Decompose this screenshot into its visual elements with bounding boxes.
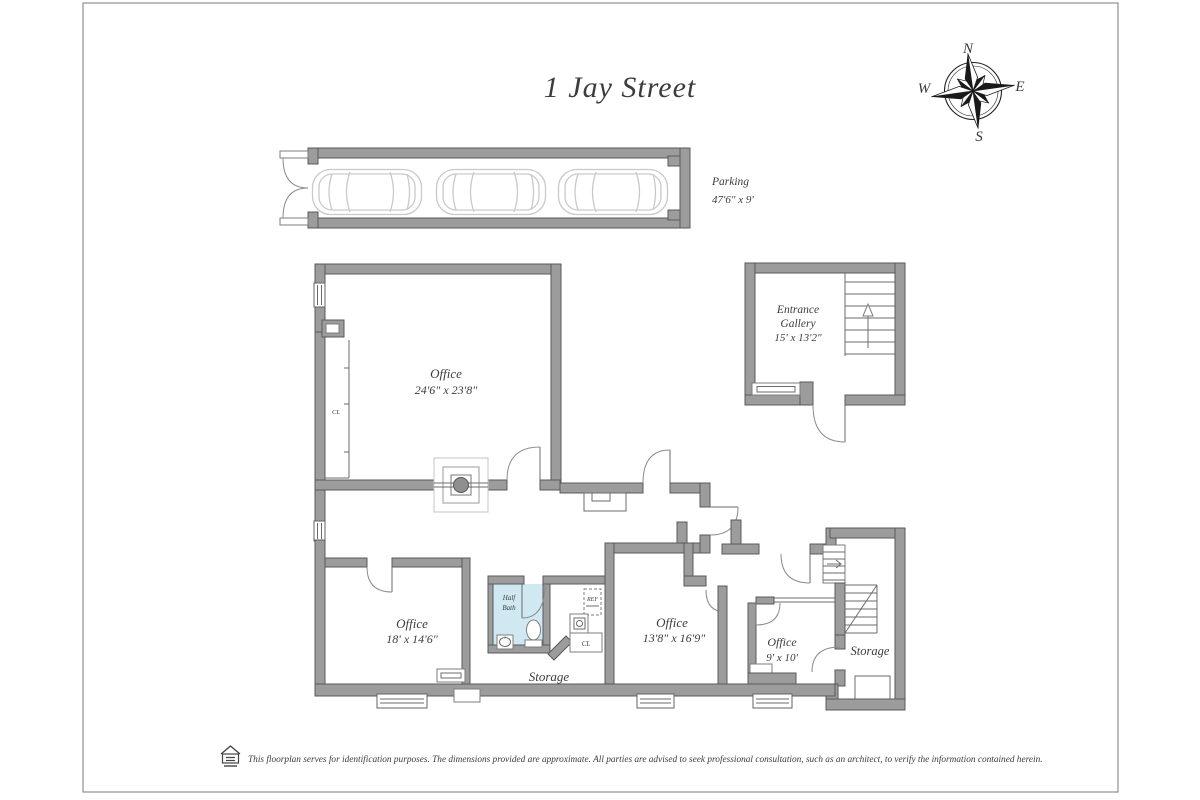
office-left-label: Office bbox=[396, 616, 428, 631]
hallway bbox=[560, 450, 836, 583]
office-main-door bbox=[507, 447, 540, 480]
compass-east-label: E bbox=[1014, 79, 1024, 95]
gallery-radiator bbox=[752, 383, 800, 395]
office-left-radiator bbox=[437, 669, 465, 682]
footer: This floorplan serves for identification… bbox=[221, 746, 1043, 766]
office-small-label: Office bbox=[767, 635, 797, 649]
office-main-dims: 24'6" x 23'8" bbox=[415, 383, 478, 397]
window bbox=[314, 283, 325, 307]
toilet-icon bbox=[525, 620, 542, 647]
storage-right-label: Storage bbox=[851, 644, 890, 658]
stairs-upper-run bbox=[823, 545, 845, 583]
closet-small: CL bbox=[548, 633, 602, 660]
floorplan-page: 1 Jay Street N W E S bbox=[0, 0, 1200, 800]
page-border bbox=[83, 3, 1118, 792]
ref-label: REF bbox=[586, 597, 598, 603]
compass-west-label: W bbox=[918, 81, 932, 97]
garage-double-door bbox=[280, 151, 308, 225]
storage-left-label: Storage bbox=[529, 669, 570, 684]
office-small-door-right bbox=[812, 647, 840, 672]
office-main-room: CL Office 24'6" x 23'8" bbox=[314, 264, 561, 512]
closet-main-label: CL bbox=[332, 409, 340, 416]
closet-small-label: CL bbox=[582, 640, 591, 648]
gallery-label-2: Gallery bbox=[780, 318, 816, 330]
gallery-entry-door bbox=[813, 405, 845, 442]
stairs-main-run bbox=[845, 585, 877, 633]
disclaimer-text: This floorplan serves for identification… bbox=[248, 754, 1043, 765]
hallway-door-1 bbox=[643, 450, 670, 483]
gallery-label-1: Entrance bbox=[776, 304, 819, 316]
hallway-vent bbox=[584, 493, 626, 511]
window bbox=[314, 521, 325, 541]
office-small-door-top bbox=[756, 603, 780, 625]
parking-dims: 47'6" x 9' bbox=[712, 194, 754, 206]
window bbox=[637, 694, 674, 708]
counter-sink bbox=[570, 614, 588, 633]
sink-icon bbox=[497, 635, 513, 649]
equal-housing-icon bbox=[221, 746, 240, 766]
gallery-dims: 15' x 13'2" bbox=[774, 332, 822, 344]
parking-garage: Parking 47'6" x 9' bbox=[280, 148, 754, 228]
car-icon bbox=[559, 170, 668, 215]
office-small-room: Office 9' x 10' bbox=[748, 597, 845, 686]
half-bath-label-2: Bath bbox=[502, 604, 516, 612]
bottom-wall bbox=[315, 684, 835, 708]
column-detail bbox=[434, 458, 488, 512]
office-middle-dims: 13'8" x 16'9" bbox=[643, 631, 706, 645]
gallery-staircase bbox=[845, 273, 895, 356]
window bbox=[753, 694, 792, 708]
office-small-dims: 9' x 10' bbox=[766, 652, 798, 664]
car-icon bbox=[437, 170, 546, 215]
compass-rose-icon: N W E S bbox=[918, 41, 1025, 145]
entrance-gallery: Entrance Gallery 15' x 13'2" bbox=[745, 263, 905, 442]
closet-main: CL bbox=[322, 320, 349, 478]
office-middle-room: Office 13'8" x 16'9" bbox=[605, 543, 727, 686]
vestibule-door bbox=[781, 554, 810, 583]
page-title: 1 Jay Street bbox=[544, 71, 697, 104]
compass-south-label: S bbox=[975, 129, 983, 145]
compass-north-label: N bbox=[962, 41, 974, 57]
office-middle-label: Office bbox=[656, 615, 688, 630]
office-left-door bbox=[367, 567, 392, 592]
car-icon bbox=[313, 170, 422, 215]
parking-label: Parking bbox=[711, 176, 749, 188]
office-left-dims: 18' x 14'6" bbox=[386, 632, 438, 646]
office-main-label: Office bbox=[430, 366, 462, 381]
window bbox=[377, 694, 427, 708]
floorplan-drawing: 1 Jay Street N W E S bbox=[0, 0, 1200, 800]
office-left-room: Office 18' x 14'6" bbox=[314, 490, 470, 690]
refrigerator: REF bbox=[584, 589, 601, 615]
half-bath-label-1: Half bbox=[502, 594, 517, 602]
